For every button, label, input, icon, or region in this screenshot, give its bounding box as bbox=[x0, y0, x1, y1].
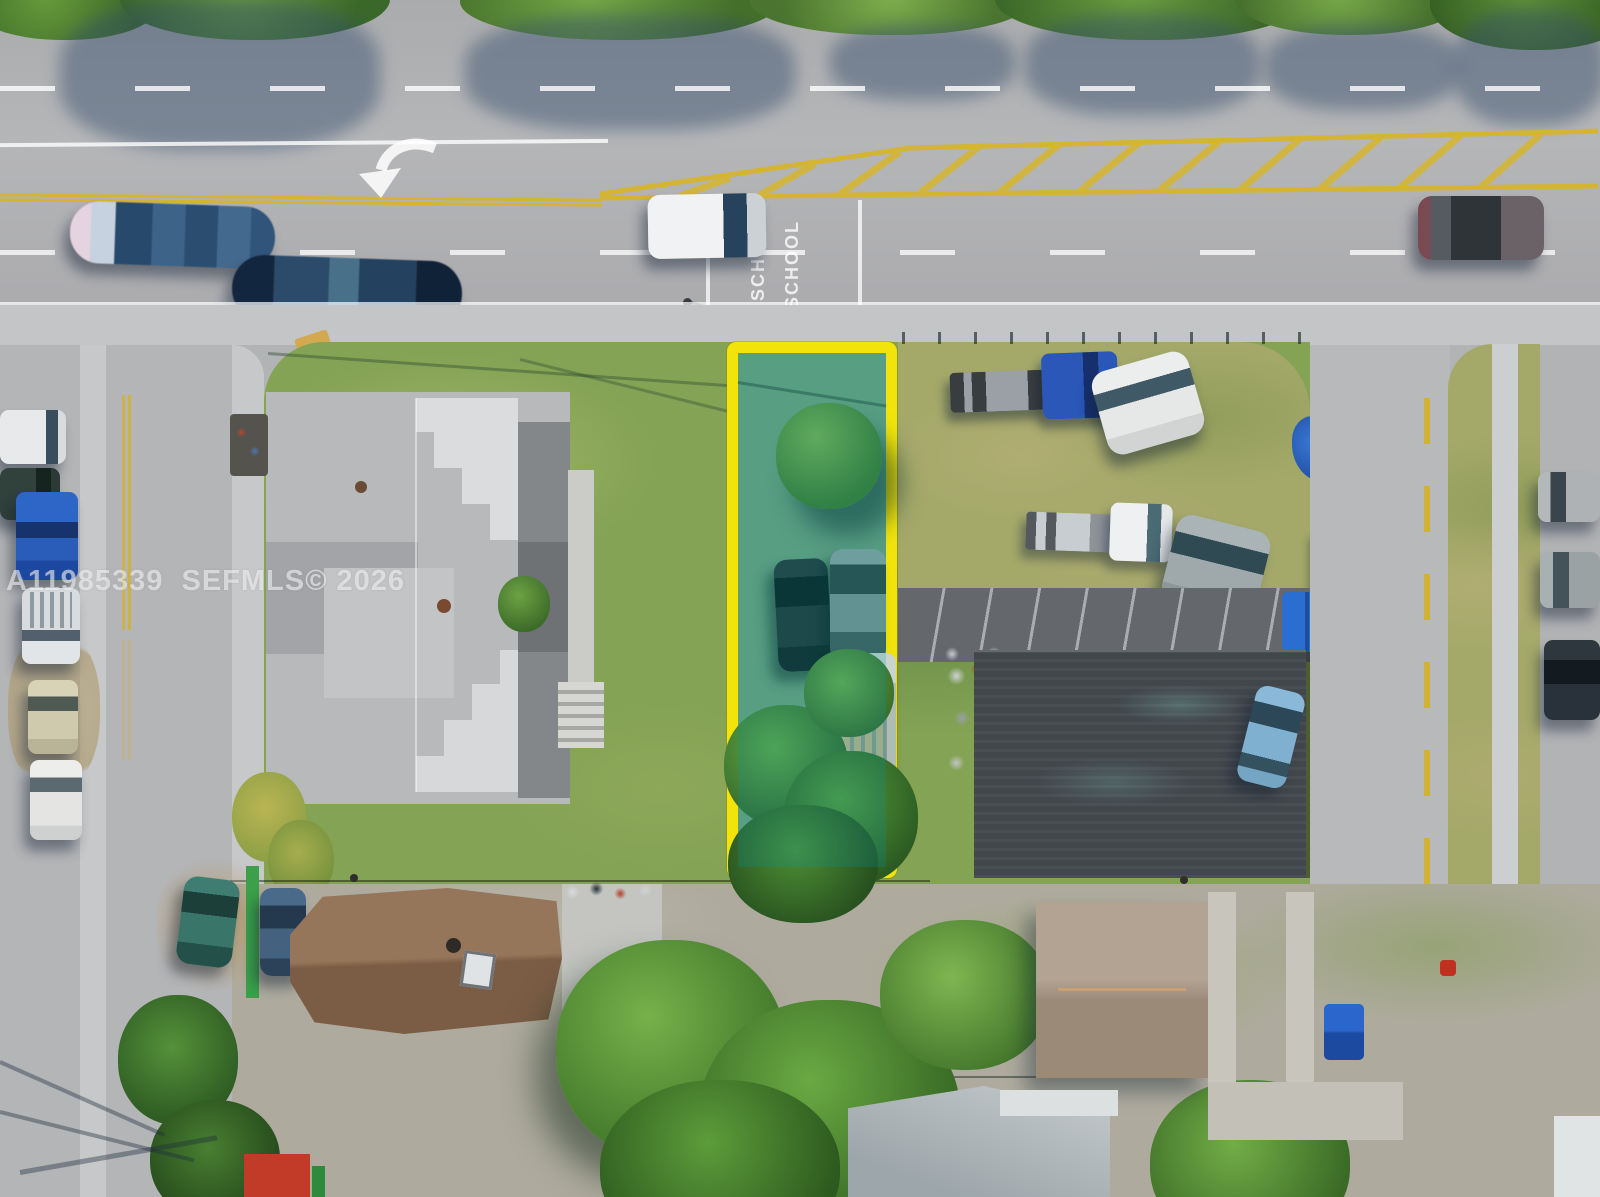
utility-pole bbox=[350, 874, 358, 882]
roof-vent bbox=[446, 938, 461, 953]
parked-van bbox=[647, 193, 766, 259]
mls-watermark: A11985339 SEFMLS© 2026 bbox=[6, 565, 405, 598]
tree-shadow bbox=[1265, 25, 1460, 110]
parked-car-white bbox=[30, 760, 82, 840]
driveway bbox=[1208, 1082, 1403, 1140]
street-yellow-dash-line bbox=[1424, 398, 1430, 890]
school-pavement-text: SCHOOL bbox=[782, 205, 803, 309]
street-double-yellow-line bbox=[122, 640, 131, 760]
flat-roof-section bbox=[1000, 1090, 1118, 1116]
parked-utility-truck bbox=[22, 588, 80, 664]
green-fence bbox=[246, 866, 259, 998]
school-zone-line bbox=[858, 200, 862, 308]
tree-shadow bbox=[1455, 10, 1600, 125]
bush bbox=[498, 576, 550, 632]
subject-lot-outline bbox=[727, 342, 897, 878]
fence-line bbox=[902, 332, 1302, 344]
utility-pole bbox=[1180, 876, 1188, 884]
house-roof-brown bbox=[290, 888, 562, 1034]
parked-van bbox=[0, 410, 66, 464]
parked-car-teal bbox=[175, 875, 241, 969]
dumpster-area bbox=[230, 414, 268, 476]
tree-canopy-large bbox=[880, 920, 1050, 1070]
moving-car bbox=[69, 200, 276, 269]
green-structure bbox=[312, 1166, 325, 1197]
parked-van-gray bbox=[1538, 472, 1600, 522]
lot-highlight-tint bbox=[738, 353, 886, 867]
sidewalk bbox=[0, 305, 1600, 345]
truck-bed bbox=[1025, 511, 1114, 552]
roof-ridge bbox=[1058, 988, 1186, 991]
boom-truck-white bbox=[1025, 495, 1173, 564]
red-object bbox=[1440, 960, 1456, 976]
parked-car-silver bbox=[1540, 552, 1600, 608]
skylight bbox=[460, 950, 497, 990]
white-shed bbox=[1554, 1116, 1600, 1197]
driveway-strip bbox=[1286, 892, 1314, 1084]
tree-shadow bbox=[465, 15, 795, 130]
house-roof-tan bbox=[1036, 902, 1208, 1078]
stored-items bbox=[560, 876, 664, 908]
lane-dash-line bbox=[0, 86, 1600, 91]
tree-shadow bbox=[1025, 15, 1260, 115]
turn-arrow-marking bbox=[355, 138, 447, 200]
suv-on-road bbox=[1418, 196, 1544, 260]
tree-shadow bbox=[60, 0, 380, 150]
parked-car-beige bbox=[28, 680, 78, 754]
truck-chassis bbox=[949, 370, 1048, 413]
front-steps bbox=[558, 682, 604, 748]
truck-cab bbox=[1109, 502, 1173, 562]
aerial-photo: SCHOOL SCHOOL bbox=[0, 0, 1600, 1197]
driveway-strip bbox=[1208, 892, 1236, 1084]
parked-car-dark bbox=[1544, 640, 1600, 720]
recycling-bins bbox=[1324, 1004, 1364, 1060]
debris bbox=[942, 658, 978, 808]
red-roof-structure bbox=[244, 1154, 310, 1197]
